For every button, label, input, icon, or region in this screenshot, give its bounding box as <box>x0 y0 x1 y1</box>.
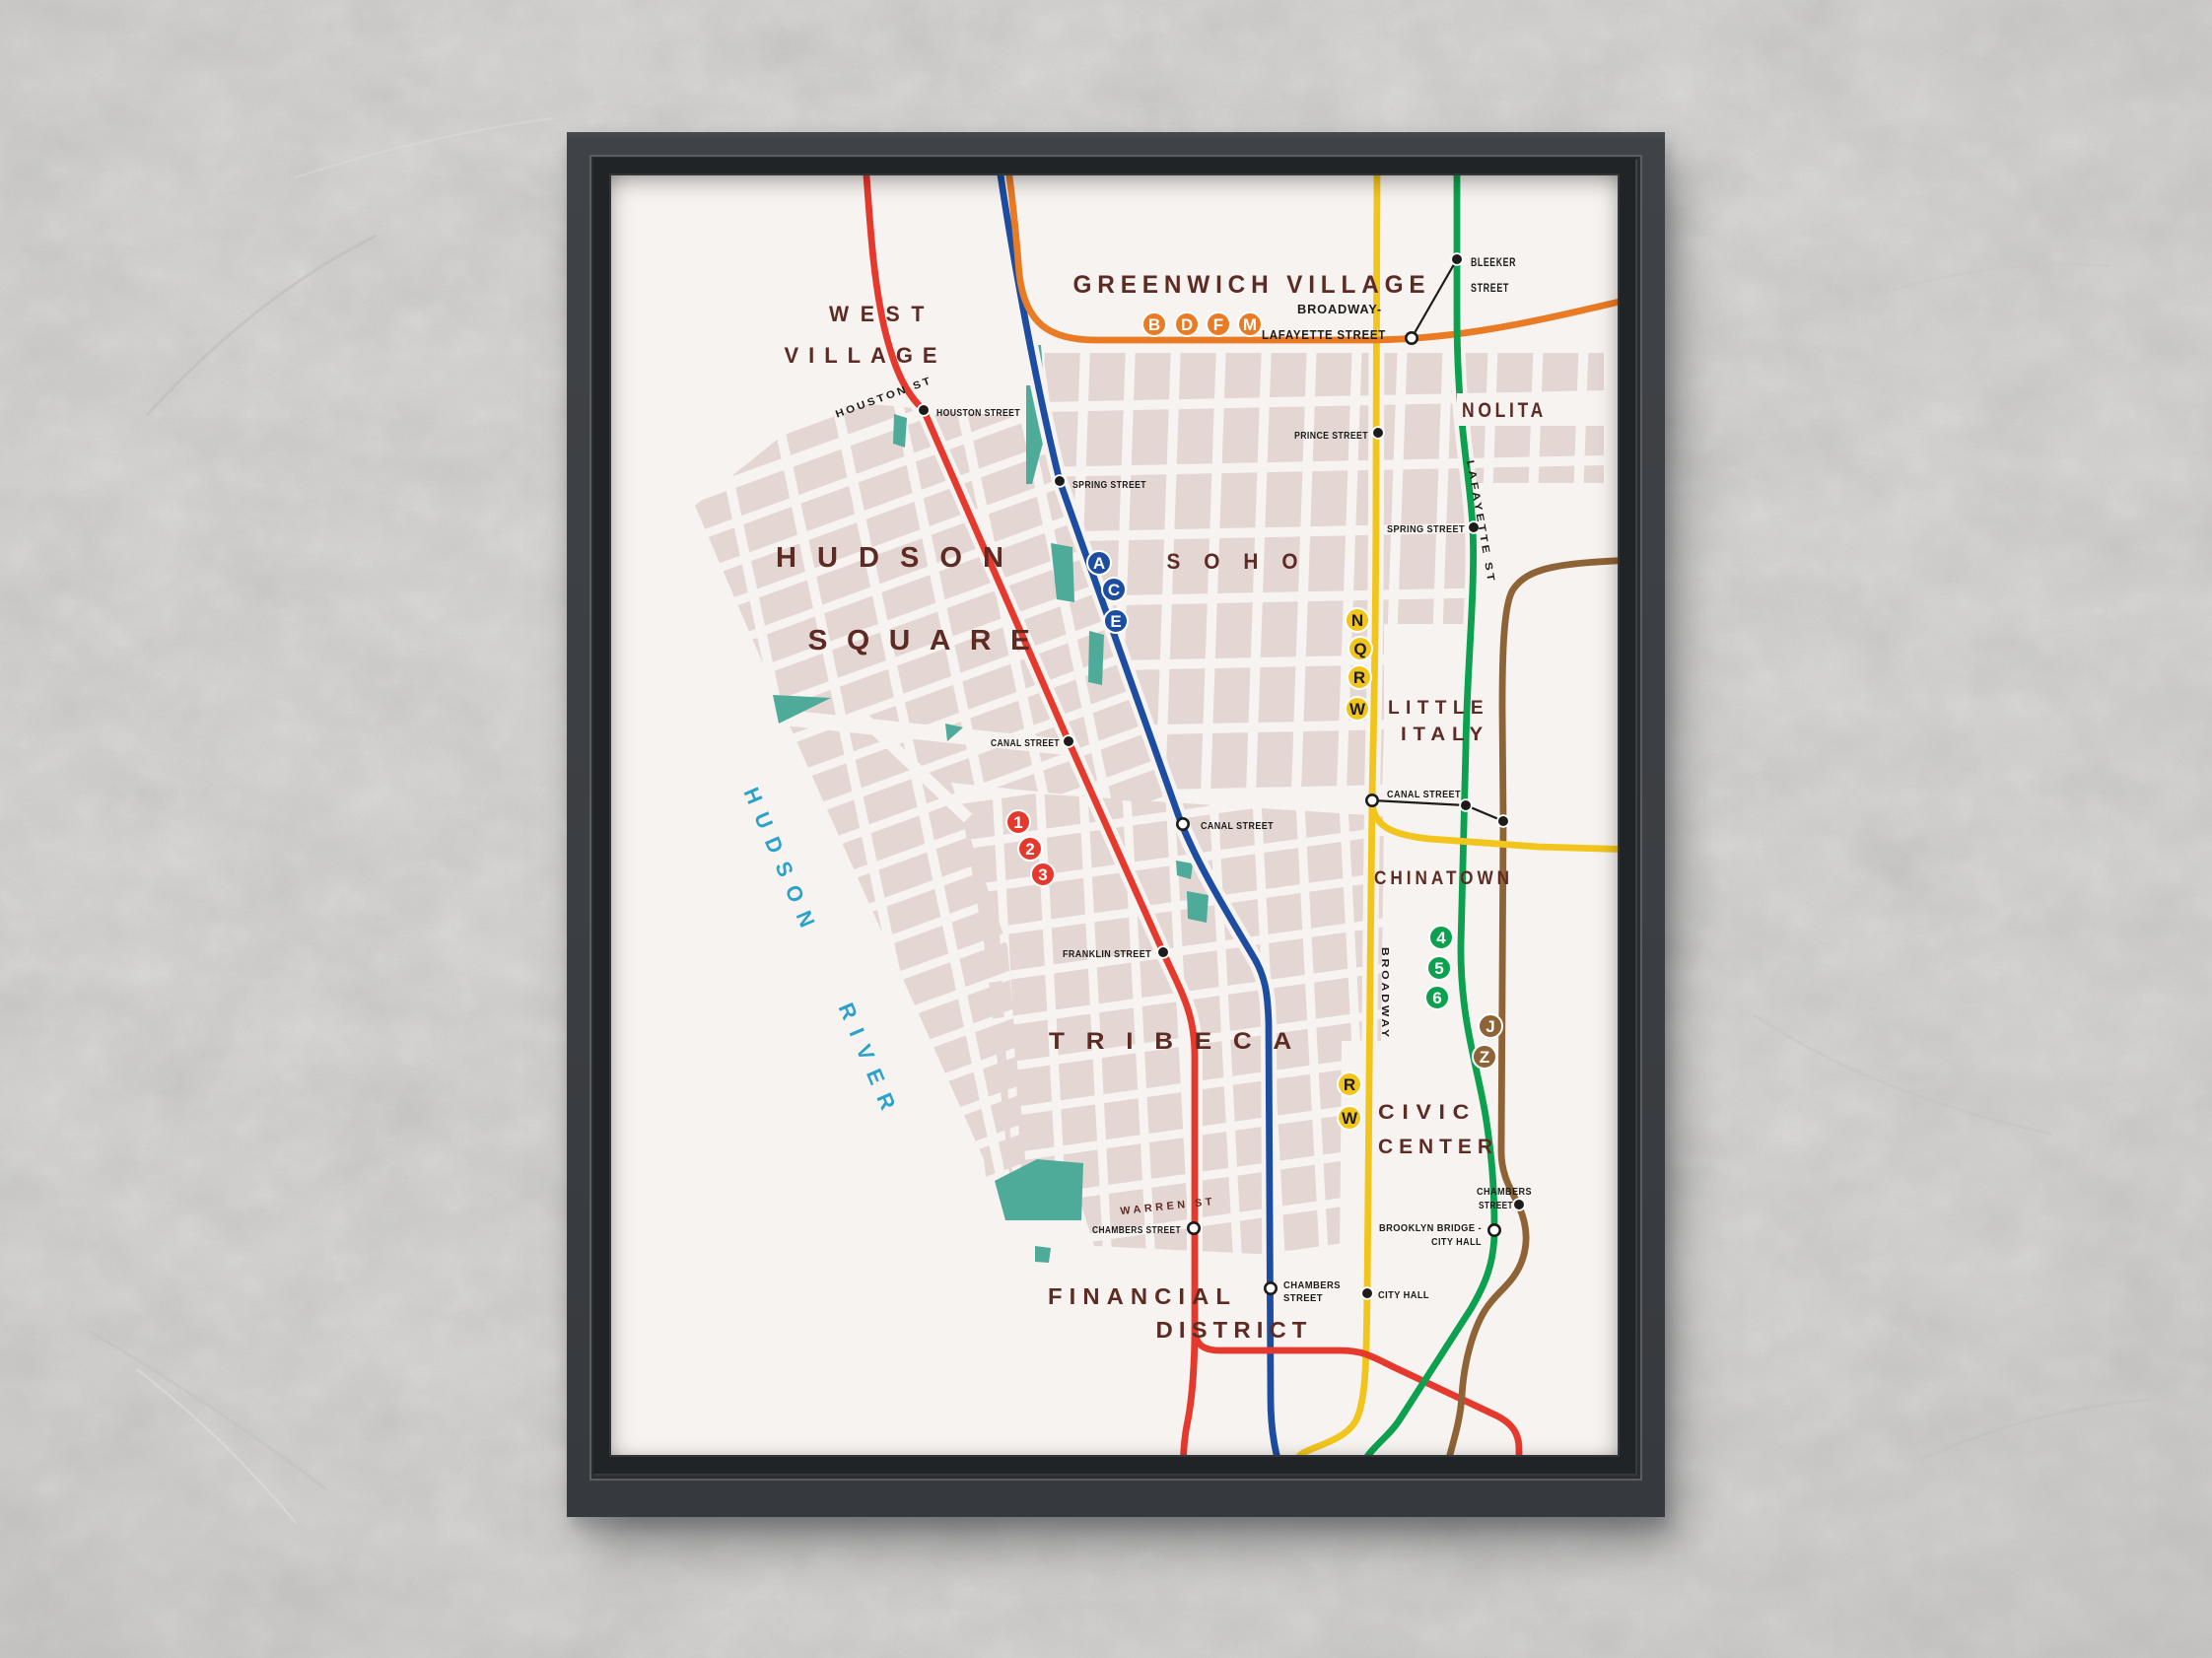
svg-text:STREET: STREET <box>1471 283 1509 295</box>
svg-text:J: J <box>1486 1017 1494 1036</box>
svg-text:CHINATOWN: CHINATOWN <box>1374 867 1513 889</box>
svg-text:CENTER: CENTER <box>1378 1136 1498 1158</box>
svg-text:RIVER: RIVER <box>834 1000 906 1125</box>
svg-text:FRANKLIN STREET: FRANKLIN STREET <box>1063 948 1151 960</box>
svg-text:C: C <box>1108 581 1120 599</box>
svg-text:HUDSON: HUDSON <box>739 784 825 941</box>
svg-text:M: M <box>1243 315 1257 334</box>
svg-text:GREENWICH VILLAGE: GREENWICH VILLAGE <box>1073 271 1431 299</box>
svg-text:LAFAYETTE STREET: LAFAYETTE STREET <box>1262 328 1386 342</box>
svg-text:1: 1 <box>1013 813 1022 832</box>
svg-text:BLEEKER: BLEEKER <box>1471 257 1516 269</box>
svg-text:PRINCE STREET: PRINCE STREET <box>1294 430 1368 442</box>
svg-text:E: E <box>1110 612 1121 631</box>
svg-text:BROADWAY: BROADWAY <box>1379 947 1391 1040</box>
svg-text:5: 5 <box>1434 959 1443 978</box>
svg-text:DISTRICT: DISTRICT <box>1156 1317 1313 1343</box>
svg-text:STREET: STREET <box>1283 1292 1323 1304</box>
svg-text:LITTLE: LITTLE <box>1388 697 1489 719</box>
svg-text:R: R <box>1353 668 1365 687</box>
svg-text:SPRING STREET: SPRING STREET <box>1387 523 1465 535</box>
svg-text:6: 6 <box>1432 989 1441 1007</box>
svg-text:Q: Q <box>1353 640 1366 658</box>
svg-text:R: R <box>1344 1075 1355 1094</box>
svg-text:CANAL STREET: CANAL STREET <box>1387 789 1461 800</box>
svg-text:HOUSTON STREET: HOUSTON STREET <box>936 407 1020 419</box>
svg-text:3: 3 <box>1038 865 1047 884</box>
svg-text:N: N <box>1351 611 1363 630</box>
svg-text:CIVIC: CIVIC <box>1378 1101 1477 1124</box>
svg-text:FINANCIAL: FINANCIAL <box>1048 1283 1237 1309</box>
svg-text:STREET: STREET <box>1479 1200 1513 1211</box>
svg-text:CITY HALL: CITY HALL <box>1431 1236 1482 1248</box>
svg-text:D: D <box>1181 315 1193 334</box>
svg-text:ITALY: ITALY <box>1401 724 1489 745</box>
svg-text:CANAL STREET: CANAL STREET <box>991 737 1060 749</box>
svg-text:Z: Z <box>1480 1048 1489 1067</box>
svg-text:HUDSON: HUDSON <box>776 542 1024 574</box>
svg-text:CHAMBERS: CHAMBERS <box>1283 1279 1341 1291</box>
svg-text:BROADWAY-: BROADWAY- <box>1297 303 1382 316</box>
svg-text:CHAMBERS: CHAMBERS <box>1477 1186 1532 1198</box>
svg-text:4: 4 <box>1436 929 1446 947</box>
svg-text:SPRING STREET: SPRING STREET <box>1072 479 1146 491</box>
svg-text:CHAMBERS STREET: CHAMBERS STREET <box>1092 1224 1181 1236</box>
svg-text:CANAL STREET: CANAL STREET <box>1201 820 1274 832</box>
svg-text:WEST: WEST <box>829 302 935 326</box>
svg-text:2: 2 <box>1025 840 1034 859</box>
svg-text:B: B <box>1148 315 1160 334</box>
svg-text:TRIBECA: TRIBECA <box>1049 1028 1313 1055</box>
svg-text:SOHO: SOHO <box>1167 549 1322 574</box>
svg-text:F: F <box>1213 315 1223 334</box>
svg-text:NOLITA: NOLITA <box>1462 399 1547 422</box>
svg-text:VILLAGE: VILLAGE <box>785 343 947 368</box>
svg-text:W: W <box>1342 1109 1358 1128</box>
svg-text:W: W <box>1349 700 1366 719</box>
svg-text:BROOKLYN BRIDGE -: BROOKLYN BRIDGE - <box>1379 1222 1482 1234</box>
svg-text:SQUARE: SQUARE <box>808 625 1050 656</box>
svg-text:CITY HALL: CITY HALL <box>1378 1289 1429 1301</box>
svg-text:A: A <box>1093 554 1105 573</box>
